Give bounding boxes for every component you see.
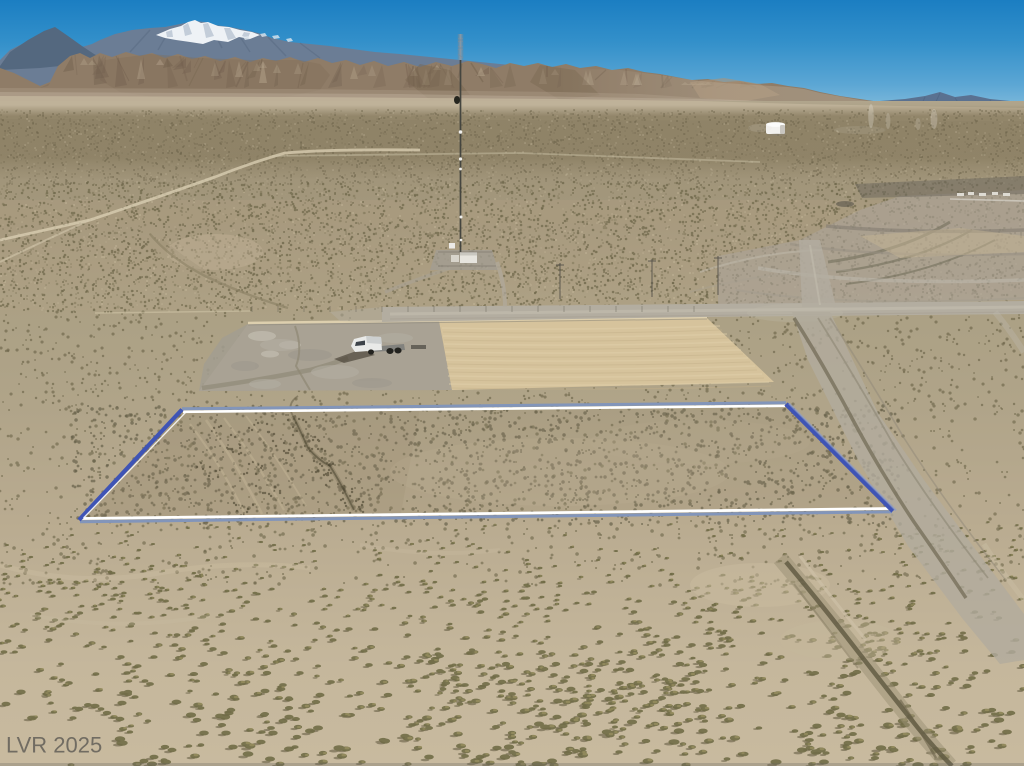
svg-text:LVR 2025: LVR 2025 bbox=[6, 733, 102, 758]
